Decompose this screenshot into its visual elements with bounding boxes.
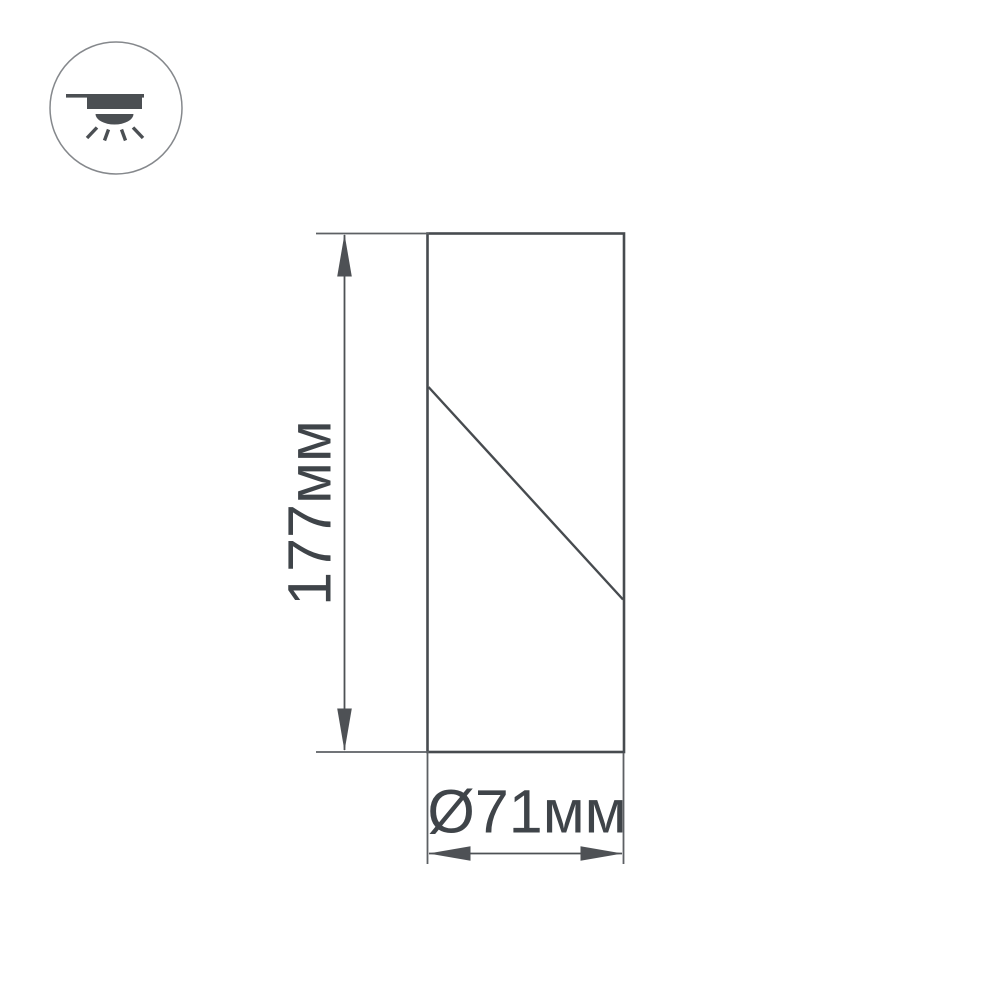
lamp-outline — [428, 234, 625, 753]
dimension-drawing-canvas — [0, 0, 1000, 1000]
diameter-arrow-right — [581, 846, 623, 860]
height-arrow-down — [337, 709, 352, 752]
dimension-drawing-page: 177мм Ø71мм — [0, 0, 1000, 1000]
lamp-diagonal-seam-line — [429, 387, 624, 600]
diameter-arrow-left — [429, 846, 471, 860]
diameter-dimension-label: Ø71мм — [427, 782, 626, 843]
height-dimension-label: 177мм — [280, 420, 341, 606]
ceiling-downlight-icon — [50, 42, 182, 174]
icon-fixture-body — [87, 94, 142, 109]
height-arrow-up — [337, 234, 352, 277]
